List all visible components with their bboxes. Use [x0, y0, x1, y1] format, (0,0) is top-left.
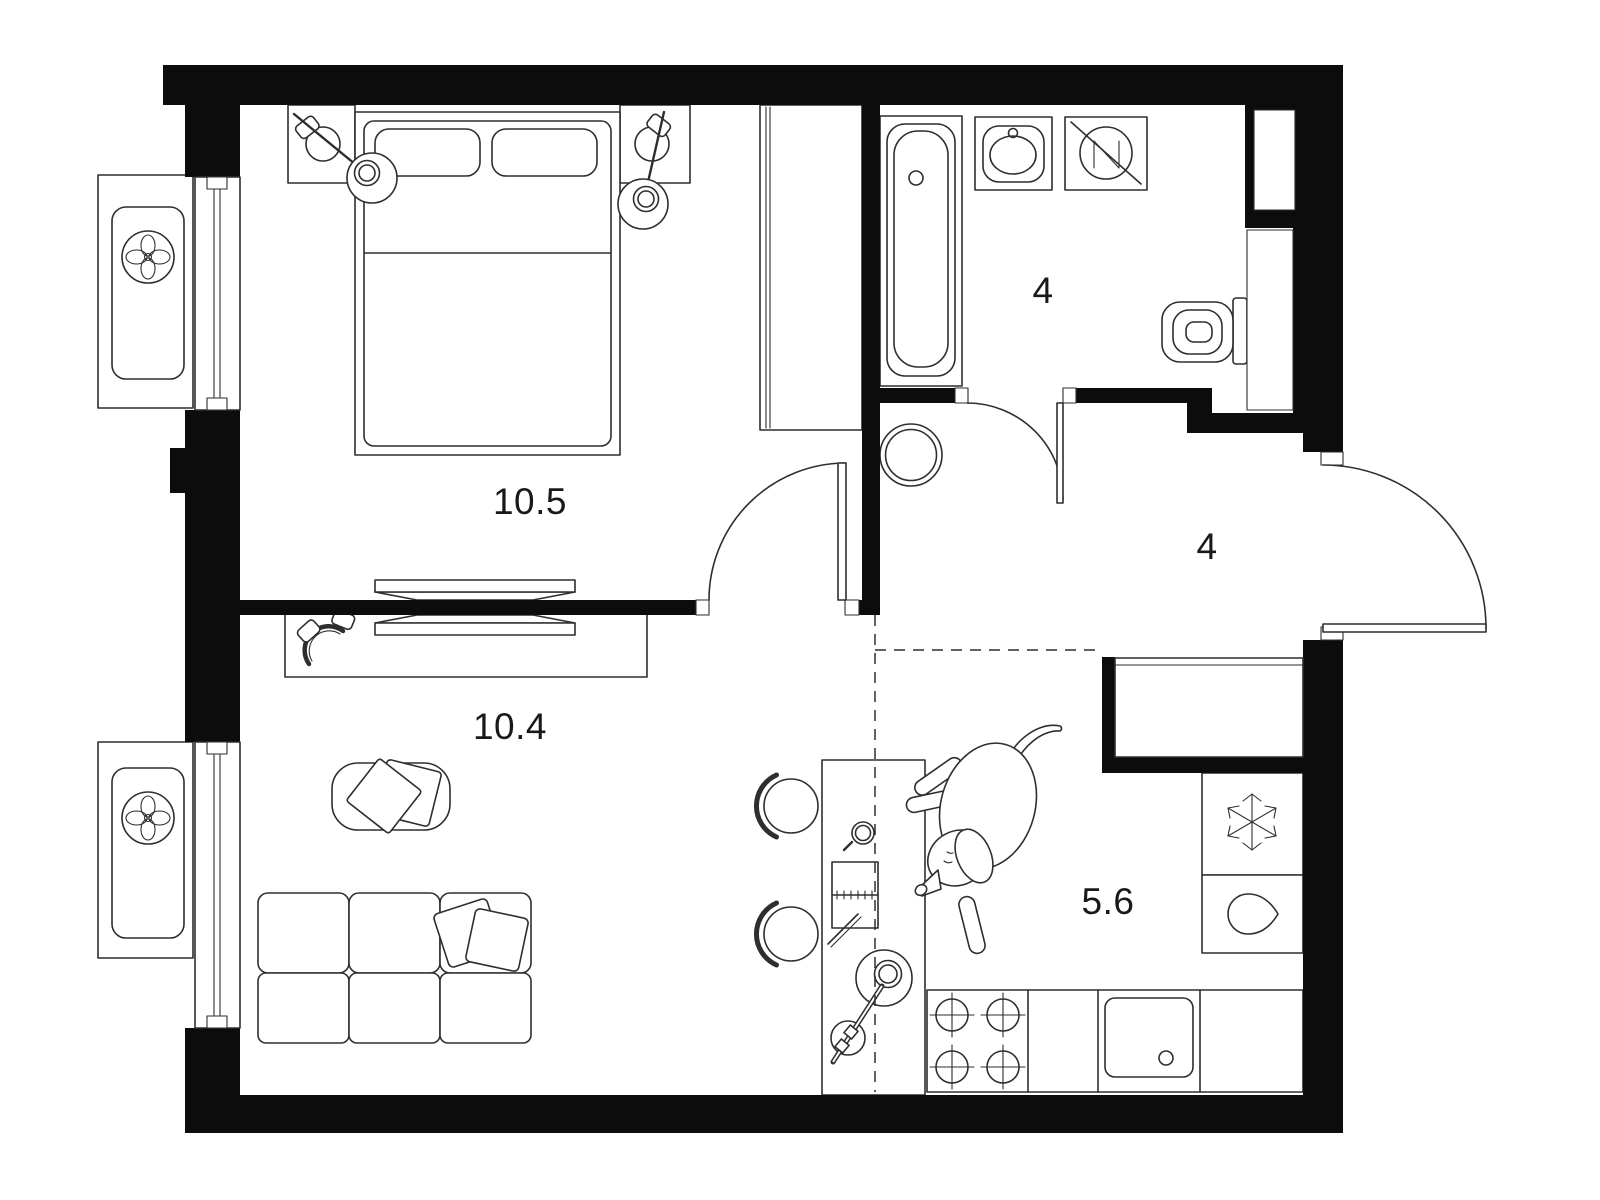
- window-bedroom: [195, 177, 240, 410]
- door-leaf: [1057, 403, 1063, 503]
- duct-shaft: [1254, 110, 1295, 210]
- bed: [355, 112, 620, 455]
- wall-closet-jamb: [1102, 657, 1115, 773]
- tv-bedroom-side: [375, 580, 575, 600]
- door-entry: [1323, 465, 1486, 632]
- living-room-area-label: 10.4: [473, 706, 547, 747]
- living-room-furniture: [258, 580, 647, 1043]
- wall-right-lower: [1303, 640, 1343, 1133]
- hallway-area-label: 4: [1196, 526, 1217, 567]
- wall-bedroom-living-divider: [240, 600, 708, 615]
- tv-living-side: [375, 615, 575, 635]
- ac-unit-bottom: [98, 742, 193, 958]
- window-living-room: [195, 742, 240, 1028]
- floor-plan: 10.5 10.4 4 4 5.6: [0, 0, 1600, 1200]
- wall-bottom: [185, 1095, 1343, 1133]
- door-bathroom: [967, 403, 1063, 503]
- washing-machine-icon: [1065, 117, 1147, 190]
- door-bedroom: [709, 463, 846, 600]
- bathtub: [880, 116, 962, 386]
- cabinet-water: [1202, 875, 1303, 953]
- bathroom-fixtures: [880, 116, 1247, 386]
- sofa: [258, 893, 531, 1043]
- wall-left-upper: [185, 105, 240, 177]
- kitchen-area-label: 5.6: [1082, 881, 1135, 922]
- bathroom-area-label: 4: [1032, 270, 1053, 311]
- wall-bedroom-right: [862, 105, 880, 615]
- floor-plan-drawing: 10.5 10.4 4 4 5.6: [0, 0, 1600, 1200]
- door-leaf: [1323, 624, 1486, 632]
- wall-right-upper: [1303, 65, 1343, 452]
- wardrobe: [760, 105, 862, 430]
- sofa-pillow: [465, 908, 529, 972]
- dog-illustration: [905, 725, 1061, 955]
- bar-stool: [756, 903, 818, 965]
- bedroom-furniture: [288, 105, 862, 455]
- kitchen-sink: [1105, 998, 1193, 1077]
- ac-unit-top: [98, 175, 193, 408]
- pillow: [492, 129, 597, 176]
- hallway-pouf: [880, 424, 942, 486]
- toilet: [1162, 298, 1247, 364]
- coffee-table: [332, 758, 450, 834]
- wall-top: [185, 65, 1303, 105]
- duct-shaft: [1247, 230, 1293, 410]
- bedroom-area-label: 10.5: [493, 481, 567, 522]
- wall-bathroom-bottom: [880, 388, 967, 403]
- bathroom-sink: [975, 117, 1052, 190]
- bar-stool: [756, 775, 818, 837]
- door-leaf: [838, 463, 846, 600]
- wall-closet-bottom: [1115, 757, 1303, 773]
- hallway-closet-niche: [1115, 658, 1303, 757]
- wall-left-middle: [185, 410, 240, 742]
